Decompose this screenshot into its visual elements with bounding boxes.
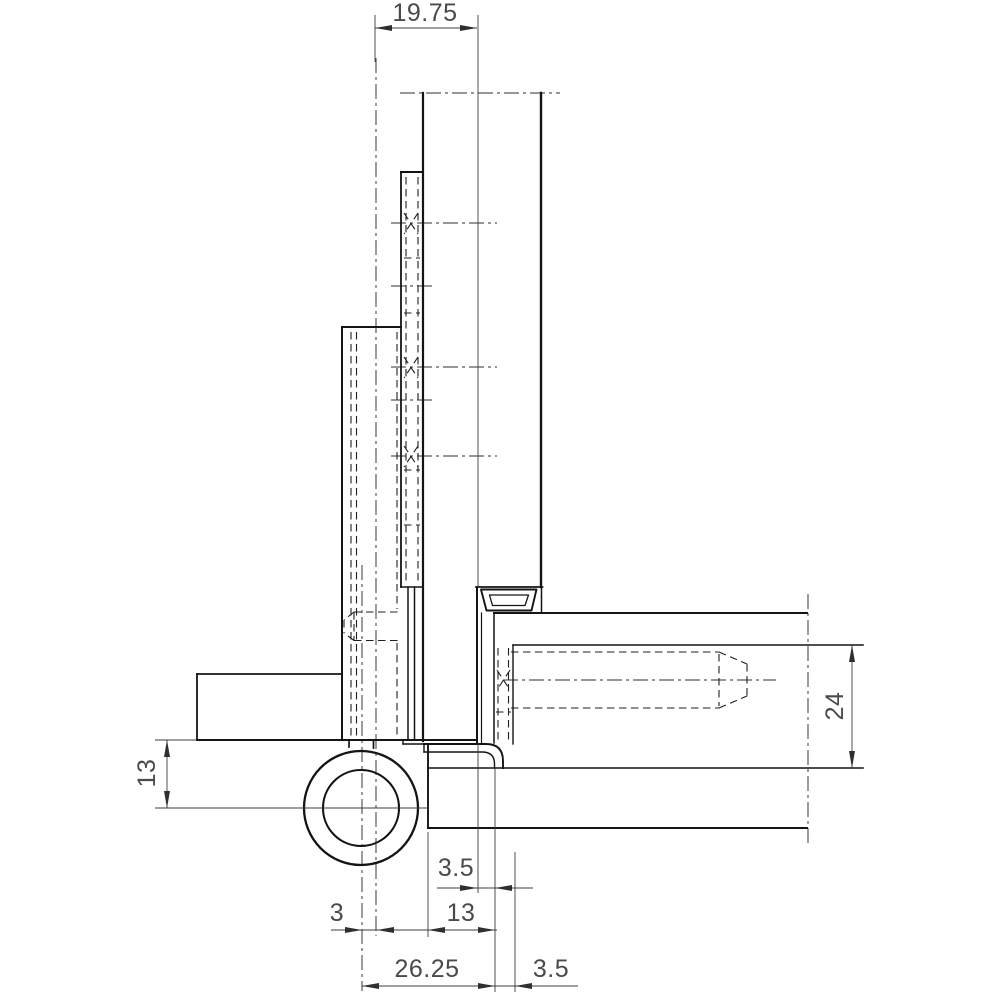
dim-label-left-height: 13 [133,759,161,788]
dim-label-top-width: 19.75 [392,0,457,27]
arrowhead [460,885,477,891]
centerlines [362,58,808,991]
frame-strip-hidden-edges [498,648,509,740]
dimension-row-pin-offset-and-mid-width: 3 13 [330,899,497,933]
arrowhead [164,740,170,757]
arrowhead [849,751,855,768]
dimension-mid-gap: 3.5 [437,854,533,891]
hidden-lines [344,177,747,740]
leaf-plate-inner [424,752,495,768]
door-leaf-section [197,93,477,748]
dim-label-mid-width: 13 [447,899,476,927]
dim-label-pin-offset: 3 [330,899,344,927]
dim-label-frame-depth: 24 [821,692,849,721]
gasket-outer-profile [481,590,537,611]
extension-lines [155,15,515,992]
hinge-leaf-plates [403,744,503,768]
dimensions: 19.75 13 24 3.5 [133,0,855,992]
dim-label-bottom-gap: 3.5 [533,955,569,983]
arrowhead [478,927,495,933]
arrowhead [495,885,512,891]
arrowhead [478,983,495,989]
hidden-screw-head-box [344,612,402,641]
arrowhead [375,25,392,31]
arrowhead [377,927,394,933]
dim-label-mid-gap: 3.5 [438,854,474,882]
leaf-plate-outer [424,744,503,768]
arrowhead [428,927,445,933]
arrowhead [164,791,170,808]
screw-channel-rungs [404,258,511,712]
dimension-top-width: 19.75 [375,0,477,31]
gasket-inner-profile [490,595,529,606]
arrowhead [362,983,379,989]
dim-label-bottom-width: 26.25 [394,955,459,983]
arrowhead [515,983,532,989]
door-frame-section [428,93,863,828]
arrowhead [460,25,477,31]
dimension-frame-depth: 24 [821,645,855,768]
hinge-technical-drawing: 19.75 13 24 3.5 [0,0,1000,1000]
arrowhead [849,645,855,662]
dimension-row-bottom: 26.25 3.5 [362,955,578,989]
arrowhead [345,927,362,933]
dimension-left-height: 13 [133,740,170,808]
